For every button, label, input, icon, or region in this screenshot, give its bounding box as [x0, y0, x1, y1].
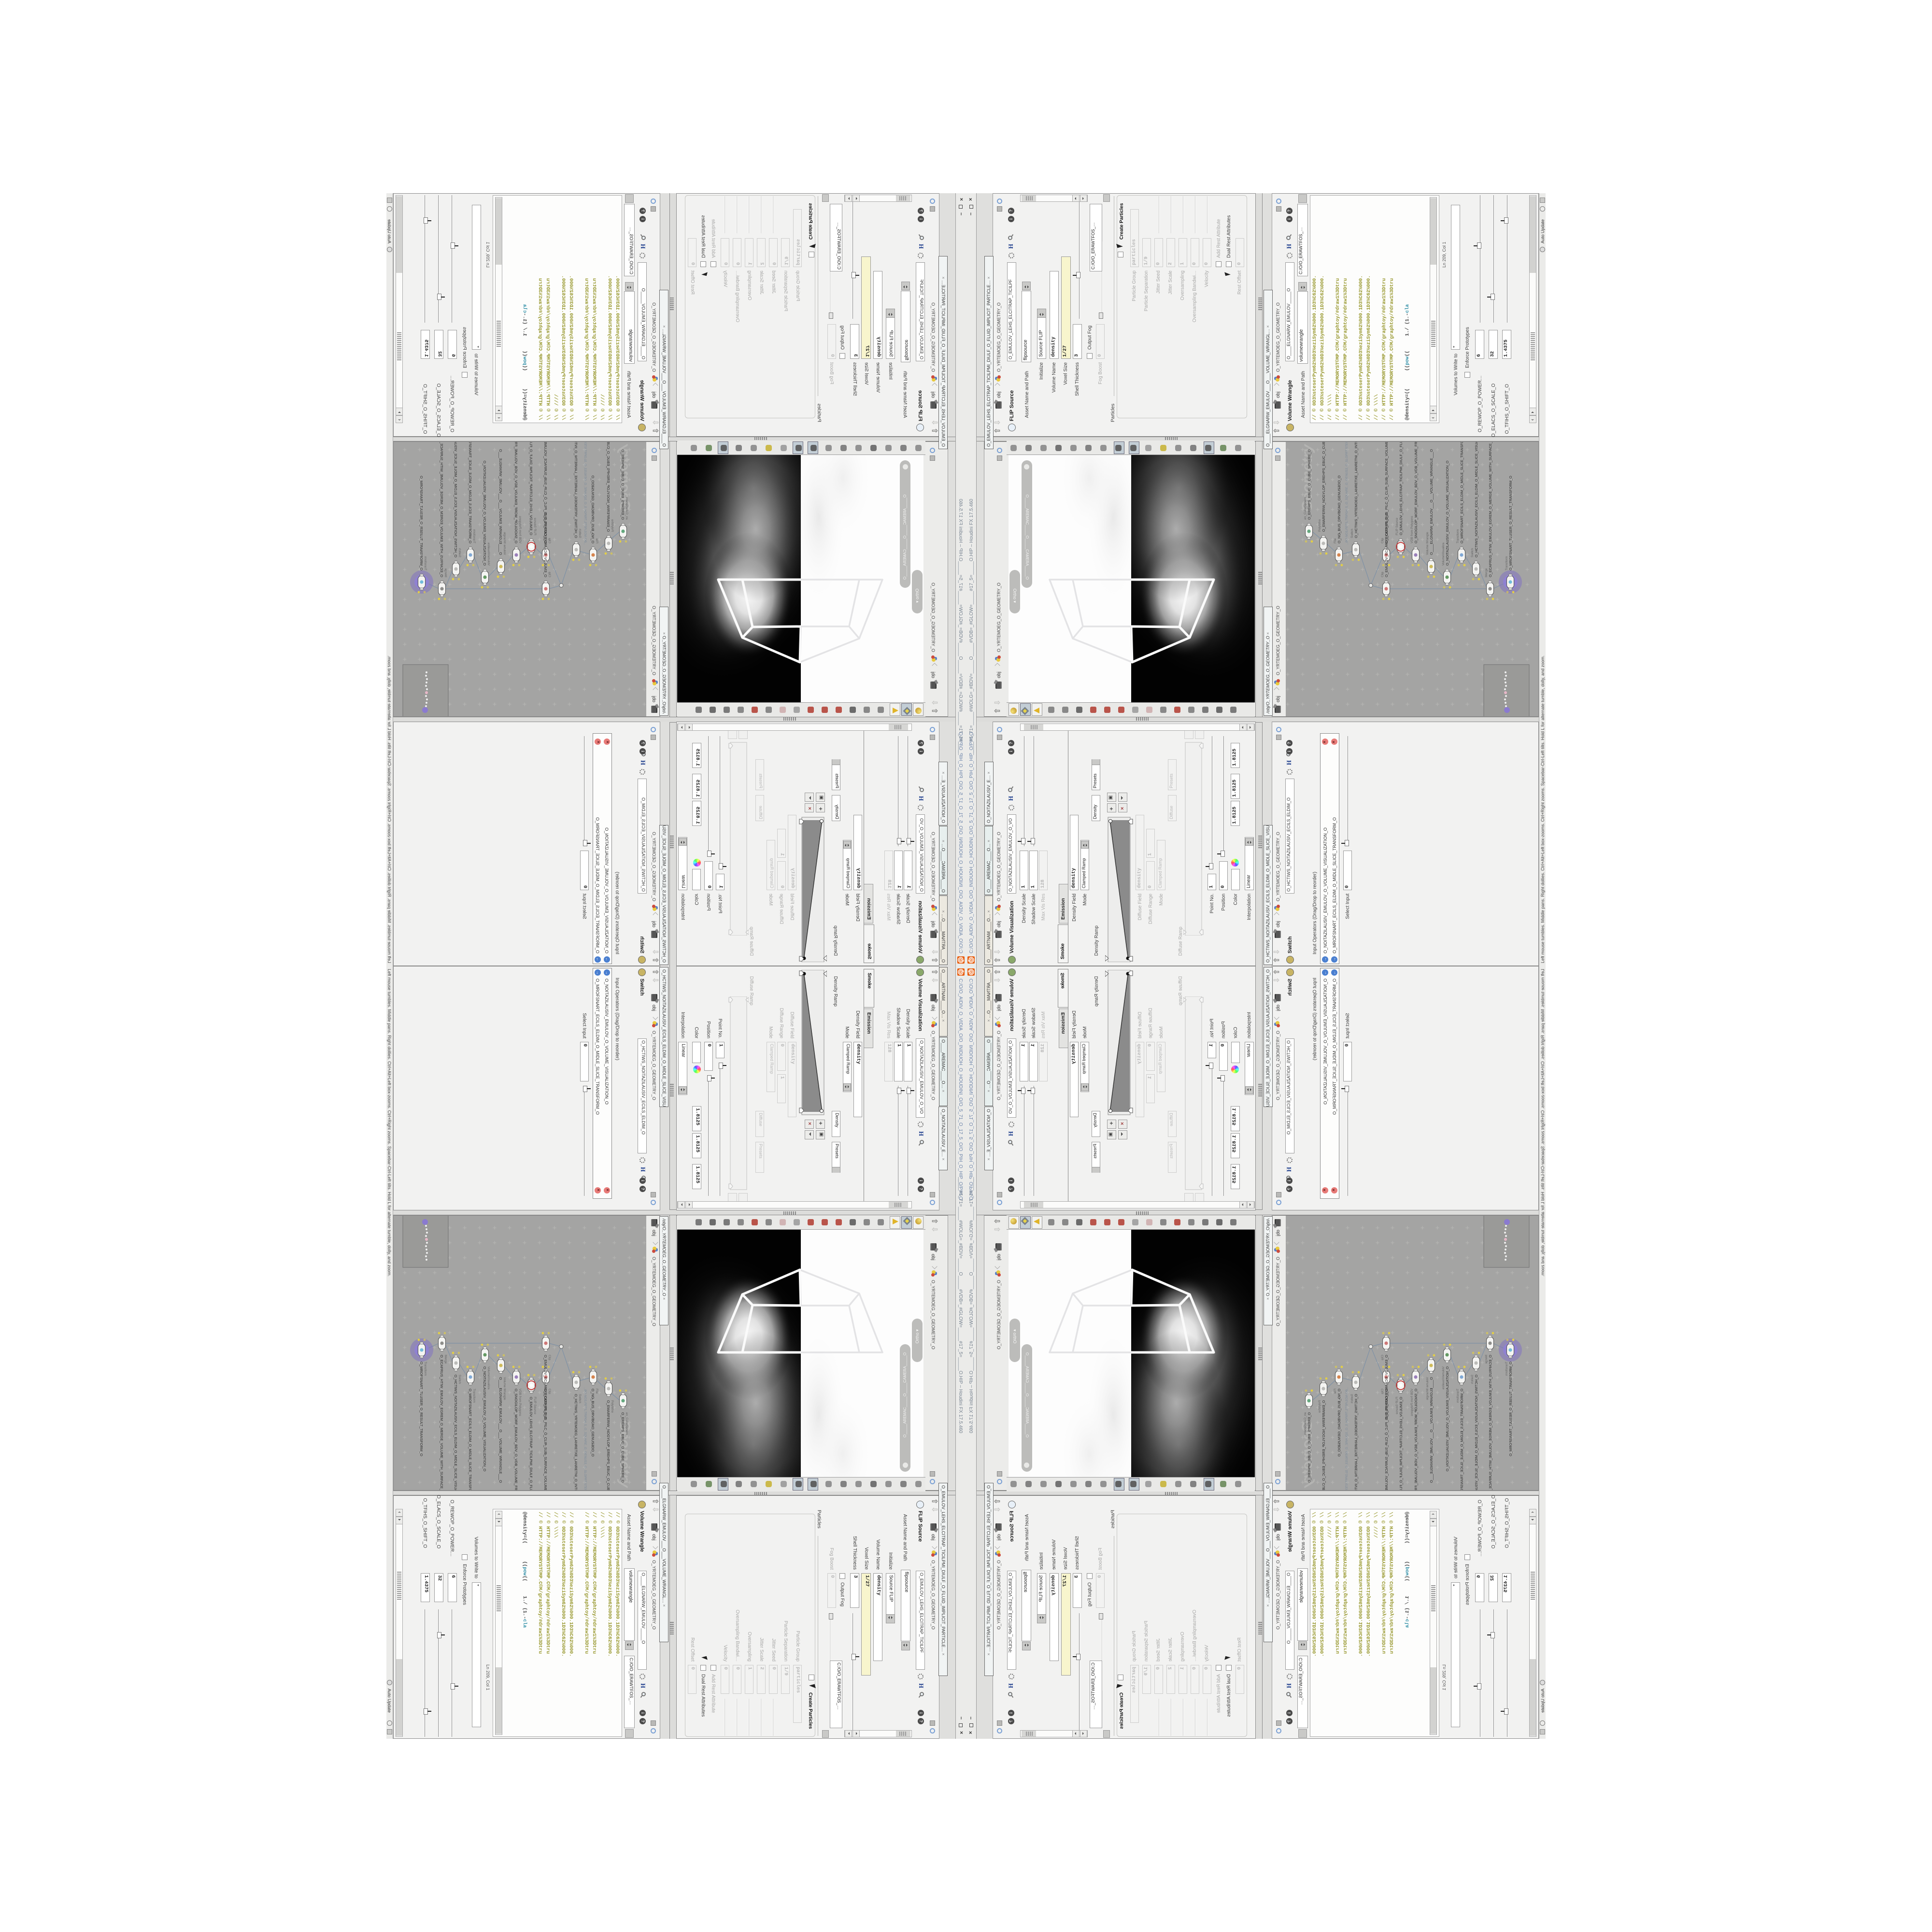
svg-text:O_EMULOV_ECAF̶RUS_ODD̶_PILC_O: O_EMULOV_ECAF̶RUS_ODD̶_PILC_O — [543, 512, 548, 577]
svg-text:Switch: Switch — [1471, 548, 1474, 557]
svg-text:O_SNOGILOP_MORF_EMULOV_BDV_O_V: O_SNOGILOP_MORF_EMULOV_BDV_O_VDB_VOLUME_… — [514, 442, 518, 543]
svg-text:Volume Wrangle: Volume Wrangle — [1426, 1377, 1429, 1400]
svg-text:VDB from Polygons: VDB from Polygons — [518, 1389, 522, 1416]
svg-text:File: File — [1334, 538, 1337, 543]
svg-text:O_NO̶_BUS_DRV/BC̶NO_GENUS̶3DO_: O_NO̶_BUS_DRV/BC̶NO_GENUS̶3DO_O — [591, 475, 595, 543]
svg-text:Transform: Transform — [472, 1389, 476, 1403]
svg-text:VolumeVisualiza: VolumeVisualiza — [487, 542, 490, 566]
svg-text:VDB from Polygons: VDB from Polygons — [518, 516, 522, 543]
svg-text:FLIP Source: FLIP Source — [1395, 1397, 1399, 1414]
svg-text:Volume Wrangle: Volume Wrangle — [1426, 532, 1429, 555]
svg-text:Transform: Transform — [1505, 556, 1508, 570]
svg-text:Transform: Transform — [424, 1362, 427, 1376]
svg-text:O_EMULOV_LEHS_ELCITRAP_TICILPM: O_EMULOV_LEHS_ELCITRAP_TICILPMI_DIULF_O_… — [529, 1397, 533, 1490]
svg-text:O_NO̶_BUS_DRV/BC̶NO_GENUS̶3DO_: O_NO̶_BUS_DRV/BC̶NO_GENUS̶3DO_O — [1337, 475, 1341, 543]
svg-text:Clip: Clip — [1381, 571, 1384, 577]
svg-text:VDB from Polygons: VDB from Polygons — [1410, 1389, 1414, 1416]
svg-text:Volume Wrangle: Volume Wrangle — [503, 1377, 506, 1400]
svg-text:O_EREHPS_EBUC_O_CUBE_SPHERE_O: O_EREHPS_EBUC_O_CUBE_SPHERE_O — [621, 449, 625, 520]
svg-text:O_EMULOV_LEHS_ELCITRAP_TICILPM: O_EMULOV_LEHS_ELCITRAP_TICILPMI_DIULF_O_… — [1399, 1397, 1403, 1490]
svg-text:_BO.NO3,PETS,TRIPGA,S_O_SQUARE: _BO.NO3,PETS,TRIPGA,S_O_SQUARE_O_GENUS3_… — [583, 442, 587, 545]
svg-text:O_EMULOV_LEHS_ELCITRAP_TICILPM: O_EMULOV_LEHS_ELCITRAP_TICILPMI_DIULF_O_… — [1399, 442, 1403, 535]
svg-text:Transform: Transform — [424, 556, 427, 570]
svg-text:O_HCTIWS_YRTEMOEG_LANRETXE_LAN: O_HCTIWS_YRTEMOEG_LANRETXE_LANRETNI_O_IN… — [574, 1394, 578, 1490]
svg-text:O_EREHPS_EBUC_O_CUBE_SPHERE_O: O_EREHPS_EBUC_O_CUBE_SPHERE_O — [1307, 1412, 1311, 1483]
svg-text:File: File — [595, 538, 598, 543]
svg-text:Volume Wrangle: Volume Wrangle — [503, 532, 506, 555]
svg-text:Transform: Transform — [1505, 1362, 1508, 1376]
svg-text:an_CubeSphere: an_CubeSphere — [1304, 1412, 1307, 1435]
svg-text:an_CubeSphere: an_CubeSphere — [1304, 497, 1307, 520]
svg-text:O_EMARFERIW_NOGYLOP_EREHPS_EBU: O_EMARFERIW_NOGYLOP_EREHPS_EBUC_O_CUBE_S… — [606, 1400, 611, 1490]
svg-text:O_HCTIWS_YRTEMOEG_LANRETXE_LAN: O_HCTIWS_YRTEMOEG_LANRETXE_LANRETNI_O_IN… — [1354, 1394, 1358, 1490]
svg-text:O_NO̶_BUS_DRV/BC̶NO_GENUS̶3DO_: O_NO̶_BUS_DRV/BC̶NO_GENUS̶3DO_O — [591, 1389, 595, 1457]
svg-text:Transform: Transform — [1456, 529, 1460, 543]
svg-text:_BO.NO3,PETS,TRIPGA,S_O_SQUARE: _BO.NO3,PETS,TRIPGA,S_O_SQUARE_O_GENUS3_… — [1345, 1387, 1349, 1490]
svg-text:_BO.NO3,PETS,TRIPGA,S_O_SQUARE: _BO.NO3,PETS,TRIPGA,S_O_SQUARE_O_GENUS3_… — [583, 1387, 587, 1490]
svg-text:Merge: Merge — [444, 568, 447, 577]
svg-text:O_EREHPS_EBUC_O_CUBE_SPHERE_O: O_EREHPS_EBUC_O_CUBE_SPHERE_O — [1307, 449, 1311, 520]
svg-text:O_MROFSNART_TLUSER_O_RESULT_TR: O_MROFSNART_TLUSER_O_RESULT_TRANSFORM_O — [419, 1362, 424, 1456]
svg-text:O_NOITAZILAUSIV_EMULOV_O_VOLUM: O_NOITAZILAUSIV_EMULOV_O_VOLUME_VISUALIZ… — [1445, 1366, 1449, 1471]
svg-text:File: File — [1334, 1389, 1337, 1394]
svg-text:O_EMULOV_LEHS_ELCITRAP_TICILPM: O_EMULOV_LEHS_ELCITRAP_TICILPMI_DIULF_O_… — [529, 442, 533, 535]
svg-text:O_EREHPS_EBUC_O_CUBE_SPHERE_O: O_EREHPS_EBUC_O_CUBE_SPHERE_O — [621, 1412, 625, 1483]
svg-text:Switch: Switch — [578, 1394, 582, 1404]
svg-text:O_MROFSNART_ECILS_ELDIM_O_MIDL: O_MROFSNART_ECILS_ELDIM_O_MIDLE_SLICE_TR… — [1460, 1389, 1464, 1490]
svg-text:O_HCTIWS_NOITAZILAUSIV_ECILS_E: O_HCTIWS_NOITAZILAUSIV_ECILS_ELDIM_O_MID… — [454, 442, 458, 557]
svg-text:Switch: Switch — [458, 1375, 461, 1384]
svg-text:O_HCTIWS_NOITAZILAUSIV_ECILS_E: O_HCTIWS_NOITAZILAUSIV_ECILS_ELDIM_O_MID… — [1474, 1375, 1478, 1490]
svg-text:VolumeVisualiza: VolumeVisualiza — [487, 1366, 490, 1390]
svg-text:O_NO̶_BUS_DRV/BC̶NO_GENUS̶3DO_: O_NO̶_BUS_DRV/BC̶NO_GENUS̶3DO_O — [1337, 1389, 1341, 1457]
svg-text:PolyWire: PolyWire — [1318, 519, 1321, 532]
svg-text:O_EMARFERIW_NOGYLOP_EREHPS_EBU: O_EMARFERIW_NOGYLOP_EREHPS_EBUC_O_CUBE_S… — [1321, 442, 1326, 532]
svg-text:Transform: Transform — [1456, 1389, 1460, 1403]
svg-text:O_MROFSNART_ECILS_ELDIM_O_MIDL: O_MROFSNART_ECILS_ELDIM_O_MIDLE_SLICE_TR… — [468, 1389, 472, 1490]
svg-text:PolyWire: PolyWire — [1318, 1400, 1321, 1413]
svg-text:O_SNOGILOP_MORF_EMULOV_BDV_O_V: O_SNOGILOP_MORF_EMULOV_BDV_O_VDB_VOLUME_… — [1414, 442, 1418, 543]
svg-text:O_HCTIWS_NOITAZILAUSIV_ECILS_E: O_HCTIWS_NOITAZILAUSIV_ECILS_ELDIM_O_MID… — [454, 1375, 458, 1490]
svg-text:Transform: Transform — [472, 529, 476, 543]
svg-text:Switch: Switch — [1471, 1375, 1474, 1384]
svg-text:O_MROFSNART_TLUSER_O_RESULT_TR: O_MROFSNART_TLUSER_O_RESULT_TRANSFORM_O — [1508, 476, 1513, 570]
svg-text:O_EMULOV_ECAF̶RUS_ODD̶_PILC_O: O_EMULOV_ECAF̶RUS_ODD̶_PILC_O — [1384, 512, 1389, 577]
svg-text:_BO.NO3,PETS,TRIPGA,S_O_SQUARE: _BO.NO3,PETS,TRIPGA,S_O_SQUARE_O_GENUS3_… — [1345, 442, 1349, 545]
svg-text:VDB from Polygons: VDB from Polygons — [1410, 516, 1414, 543]
svg-text:Merge: Merge — [1485, 1355, 1488, 1364]
svg-text:Switch: Switch — [1350, 528, 1354, 538]
svg-text:O_HCTIWS_NOITAZILAUSIV_ECILS_E: O_HCTIWS_NOITAZILAUSIV_ECILS_ELDIM_O_MID… — [1474, 442, 1478, 557]
svg-text:O____ELGNARW_EMULOV___O___VOLU: O____ELGNARW_EMULOV___O___VOLUME_WRANGLE… — [498, 1377, 503, 1483]
svg-text:an_CubeSphere: an_CubeSphere — [625, 497, 628, 520]
svg-text:Clip: Clip — [548, 1389, 551, 1394]
svg-text:O_NOITAZILAUSIV_EMULOV_O_VOLUM: O_NOITAZILAUSIV_EMULOV_O_VOLUME_VISUALIZ… — [483, 461, 487, 566]
svg-text:O_ECAFRUS_HTIW_EMULOV_EGREM_O_: O_ECAFRUS_HTIW_EMULOV_EGREM_O_MERGE_VOLU… — [440, 442, 444, 577]
svg-text:O____ELGNARW_EMULOV___O___VOLU: O____ELGNARW_EMULOV___O___VOLUME_WRANGLE… — [1429, 1377, 1434, 1483]
svg-text:Clip: Clip — [548, 571, 551, 577]
svg-text:O_SNOGILOP_MORF_EMULOV_BDV_O_V: O_SNOGILOP_MORF_EMULOV_BDV_O_VDB_VOLUME_… — [1414, 1389, 1418, 1490]
svg-text:O____ELGNARW_EMULOV___O___VOLU: O____ELGNARW_EMULOV___O___VOLUME_WRANGLE… — [498, 449, 503, 555]
svg-text:FLIP Source: FLIP Source — [533, 1397, 537, 1414]
svg-text:VolumeVisualiza: VolumeVisualiza — [1442, 1366, 1445, 1390]
svg-text:Switch: Switch — [1350, 1394, 1354, 1404]
svg-text:Switch: Switch — [458, 548, 461, 557]
svg-text:O_ECAFRUS_HTIW_EMULOV_EGREM_O_: O_ECAFRUS_HTIW_EMULOV_EGREM_O_MERGE_VOLU… — [440, 1355, 444, 1490]
svg-text:Clip: Clip — [548, 538, 551, 543]
svg-text:O_SNOGILOP_MORF_EMULOV_BDV_O_V: O_SNOGILOP_MORF_EMULOV_BDV_O_VDB_VOLUME_… — [514, 1389, 518, 1490]
svg-text:VolumeVisualiza: VolumeVisualiza — [1442, 542, 1445, 566]
svg-text:O____ELGNARW_EMULOV___O___VOLU: O____ELGNARW_EMULOV___O___VOLUME_WRANGLE… — [1429, 449, 1434, 555]
svg-text:FLIP Source: FLIP Source — [533, 518, 537, 535]
svg-text:Merge: Merge — [1485, 568, 1488, 577]
svg-text:Clip: Clip — [1381, 1389, 1384, 1394]
svg-text:PolyWire: PolyWire — [611, 1400, 614, 1413]
svg-text:O_HCTIWS_YRTEMOEG_LANRETXE_LAN: O_HCTIWS_YRTEMOEG_LANRETXE_LANRETNI_O_IN… — [1354, 442, 1358, 538]
svg-text:Switch: Switch — [578, 528, 582, 538]
svg-text:O_ECAFRUS_HTIW_EMULOV_EGREM_O_: O_ECAFRUS_HTIW_EMULOV_EGREM_O_MERGE_VOLU… — [1488, 1355, 1492, 1490]
svg-text:O_MROFSNART_TLUSER_O_RESULT_TR: O_MROFSNART_TLUSER_O_RESULT_TRANSFORM_O — [419, 476, 424, 570]
svg-text:an_CubeSphere: an_CubeSphere — [625, 1412, 628, 1435]
svg-text:Clip: Clip — [548, 1355, 551, 1361]
svg-text:O_MROFSNART_ECILS_ELDIM_O_MIDL: O_MROFSNART_ECILS_ELDIM_O_MIDLE_SLICE_TR… — [468, 442, 472, 543]
svg-text:O_MROFSNART_ECILS_ELDIM_O_MIDL: O_MROFSNART_ECILS_ELDIM_O_MIDLE_SLICE_TR… — [1460, 442, 1464, 543]
svg-text:O_EMARFERIW_NOGYLOP_EREHPS_EBU: O_EMARFERIW_NOGYLOP_EREHPS_EBUC_O_CUBE_S… — [606, 442, 611, 532]
svg-text:O_NOITAZILAUSIV_EMULOV_O_VOLUM: O_NOITAZILAUSIV_EMULOV_O_VOLUME_VISUALIZ… — [1445, 461, 1449, 566]
svg-text:PolyWire: PolyWire — [611, 519, 614, 532]
svg-text:O_EMULOV_ECAF̶RUS_ODD̶_PILC_O: O_EMULOV_ECAF̶RUS_ODD̶_PILC_O — [1384, 1355, 1389, 1420]
svg-text:O_EMULOV_ECAF̶RUS_ODD̶_PILC_O: O_EMULOV_ECAF̶RUS_ODD̶_PILC_O — [543, 1355, 548, 1420]
svg-text:O_MROFSNART_TLUSER_O_RESULT_TR: O_MROFSNART_TLUSER_O_RESULT_TRANSFORM_O — [1508, 1362, 1513, 1456]
svg-text:FLIP Source: FLIP Source — [1395, 518, 1399, 535]
svg-text:O_EMARFERIW_NOGYLOP_EREHPS_EBU: O_EMARFERIW_NOGYLOP_EREHPS_EBUC_O_CUBE_S… — [1321, 1400, 1326, 1490]
svg-text:Merge: Merge — [444, 1355, 447, 1364]
svg-text:Clip: Clip — [1381, 538, 1384, 543]
svg-text:O_ECAFRUS_HTIW_EMULOV_EGREM_O_: O_ECAFRUS_HTIW_EMULOV_EGREM_O_MERGE_VOLU… — [1488, 442, 1492, 577]
svg-text:Clip: Clip — [1381, 1355, 1384, 1361]
svg-text:File: File — [595, 1389, 598, 1394]
svg-text:O_HCTIWS_YRTEMOEG_LANRETXE_LAN: O_HCTIWS_YRTEMOEG_LANRETXE_LANRETNI_O_IN… — [574, 442, 578, 538]
svg-text:O_NOITAZILAUSIV_EMULOV_O_VOLUM: O_NOITAZILAUSIV_EMULOV_O_VOLUME_VISUALIZ… — [483, 1366, 487, 1471]
